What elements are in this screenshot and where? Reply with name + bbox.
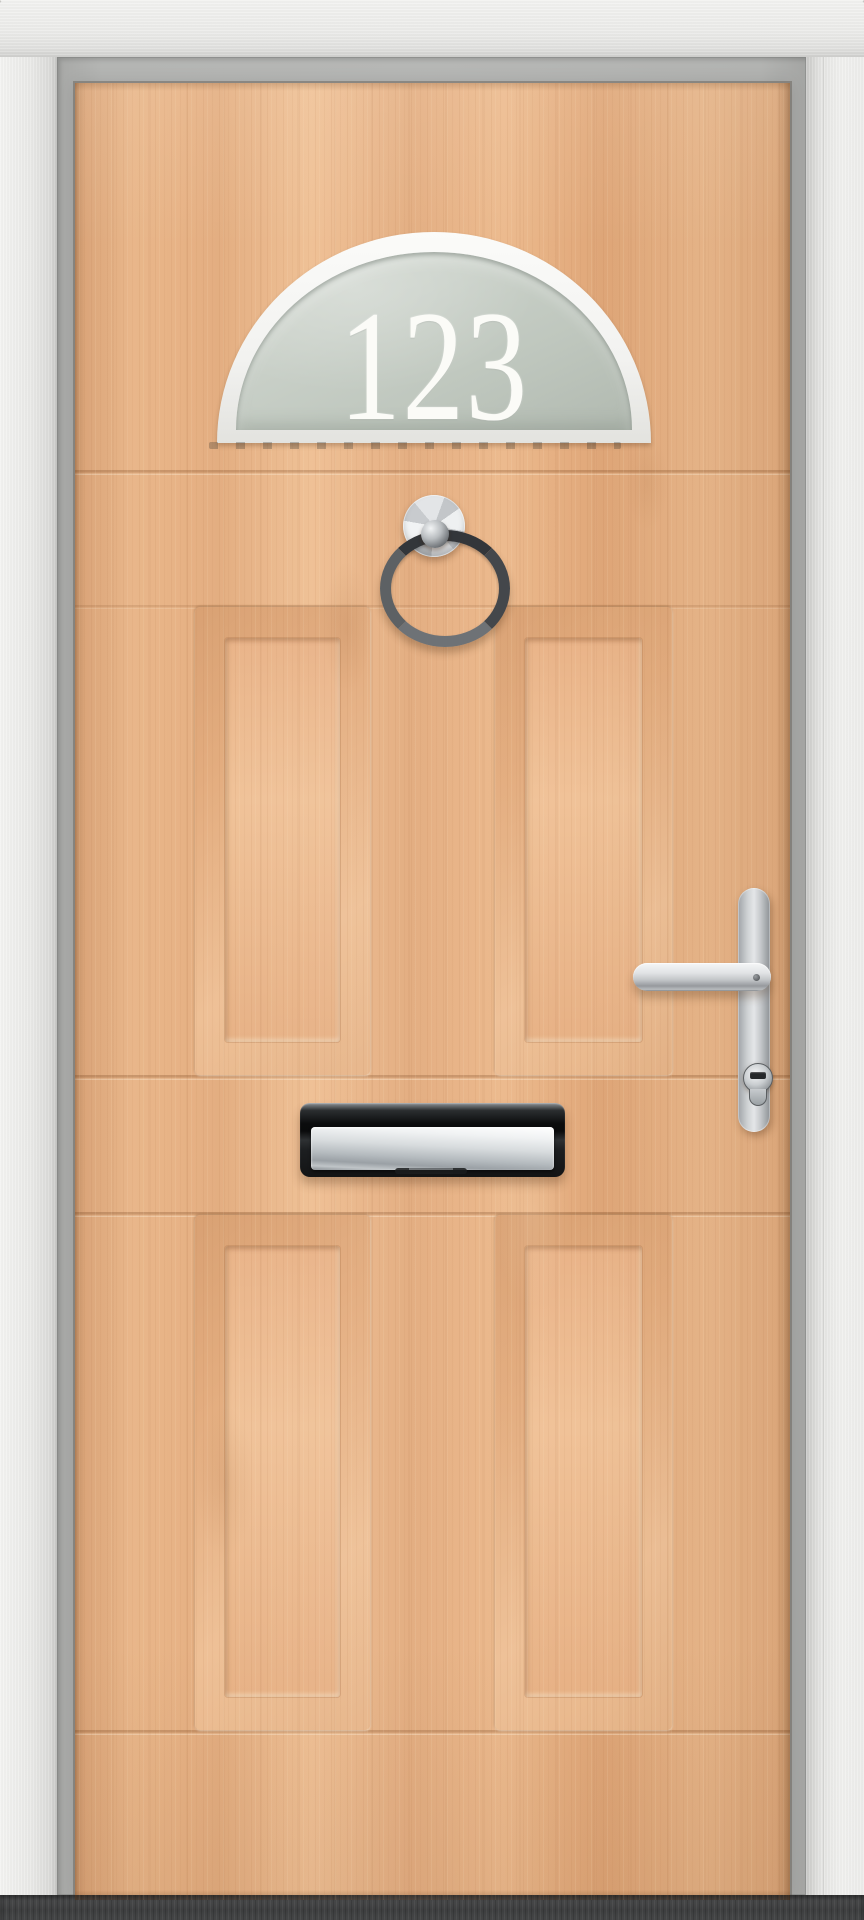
door-panel-top-left xyxy=(195,607,370,1075)
glass-bevel-ticks xyxy=(209,442,621,449)
door-edge-shadow-top xyxy=(75,83,790,91)
rail-groove xyxy=(75,1212,790,1217)
knocker-pivot-ball xyxy=(421,520,449,548)
door-edge-shadow-bottom xyxy=(75,1890,790,1900)
door-panel-bottom-left xyxy=(195,1215,370,1730)
euro-cylinder-lock xyxy=(743,1063,773,1107)
letter-plate-grip xyxy=(395,1168,467,1174)
door-panel-bottom-right xyxy=(495,1215,672,1730)
door-slab: 123 xyxy=(75,83,790,1900)
handle-lever xyxy=(633,963,771,991)
cylinder-keyway xyxy=(750,1072,766,1079)
door-frame-jamb-left xyxy=(0,0,57,1895)
cylinder-body xyxy=(749,1089,767,1106)
letter-plate xyxy=(300,1103,565,1177)
rail-groove xyxy=(75,470,790,475)
letter-plate-flap xyxy=(311,1127,554,1170)
door-edge-shadow-left xyxy=(75,83,85,1900)
panel-recessed-field xyxy=(225,1246,340,1697)
handle-spindle-cap xyxy=(753,974,760,981)
ring-knocker xyxy=(380,495,488,627)
composite-door-product-image: 123 xyxy=(0,0,864,1920)
panel-recessed-field xyxy=(525,1246,642,1697)
rail-groove xyxy=(75,1730,790,1735)
door-edge-shadow-right xyxy=(776,83,790,1900)
glass-house-number: 123 xyxy=(280,288,589,430)
knocker-ring xyxy=(380,530,510,647)
door-frame-jamb-right xyxy=(806,0,864,1895)
door-handle xyxy=(633,888,773,1138)
panel-recessed-field xyxy=(225,638,340,1042)
door-frame-head xyxy=(0,0,864,57)
panel-recessed-field xyxy=(525,638,642,1042)
